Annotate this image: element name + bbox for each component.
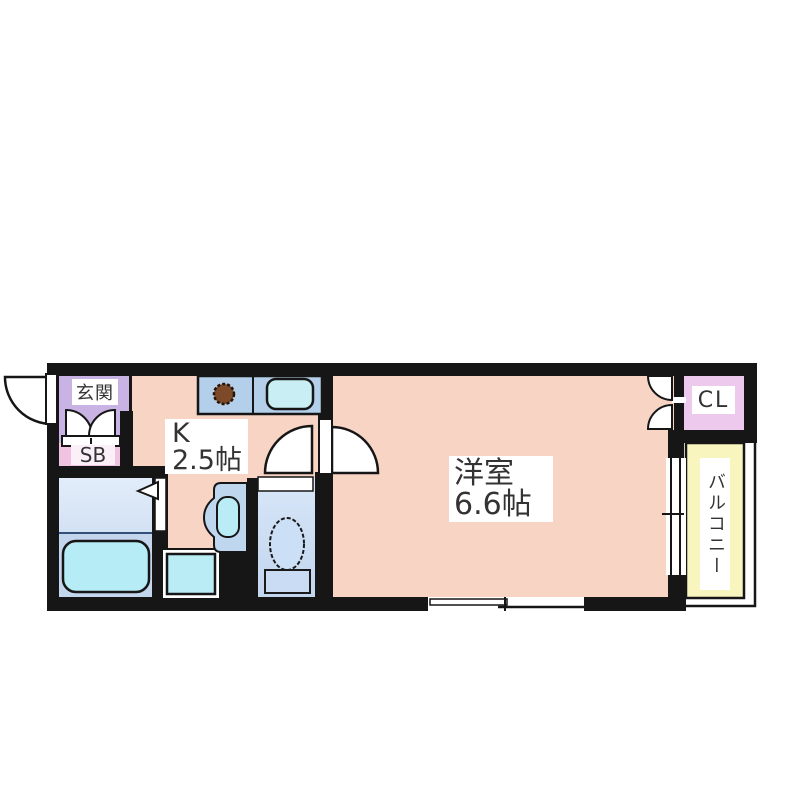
stove-burner-icon (214, 384, 234, 404)
entrance-door-swing (5, 377, 52, 424)
toilet-tank-icon (265, 570, 310, 593)
floor-plan: 玄関 SB K 2.5帖 洋室 6.6帖 CL バルコニー (0, 0, 800, 800)
window-panel-1 (430, 599, 507, 605)
closet-label: CL (692, 386, 735, 414)
kitchen-sink-icon (267, 379, 313, 409)
washbasin-bowl-icon (217, 497, 239, 537)
wall-below-closet (668, 430, 744, 443)
wall-right (744, 363, 757, 443)
main-room-label: 洋室 6.6帖 (449, 456, 553, 522)
room-door-leaf (319, 419, 332, 474)
wall-below-shoe-box (47, 466, 168, 478)
washing-machine-pan (163, 550, 219, 598)
toilet-door-threshold (258, 477, 313, 491)
entrance-door (5, 374, 57, 424)
sliding-window (428, 597, 584, 611)
wall-above-sliding-door (668, 443, 684, 459)
entrance-label: 玄関 (72, 379, 118, 405)
entrance-step-line (129, 376, 132, 413)
closet-door-meeting-mark (672, 397, 686, 403)
wall-bottom (47, 597, 686, 611)
wall-toilet-left (247, 478, 258, 598)
kitchen-size: 2.5帖 (172, 447, 242, 474)
washing-machine-icon (167, 554, 215, 594)
entrance-door-leaf (46, 374, 57, 424)
toilet-bowl-icon (270, 518, 304, 570)
bathtub (63, 541, 149, 592)
sliding-door-opening (666, 458, 686, 575)
main-room-size: 6.6帖 (454, 489, 532, 521)
main-room-name: 洋室 (454, 458, 514, 490)
kitchen-abbr: K (172, 420, 190, 447)
floor-bathroom-dressing (59, 478, 152, 533)
kitchen-counter (198, 376, 322, 414)
balcony-label: バルコニー (700, 458, 730, 590)
wall-top (47, 363, 757, 376)
kitchen-label: K 2.5帖 (165, 419, 248, 474)
floor-plan-drawing (0, 0, 800, 800)
shoe-box-label: SB (71, 445, 115, 465)
wall-toilet-main (315, 472, 333, 598)
